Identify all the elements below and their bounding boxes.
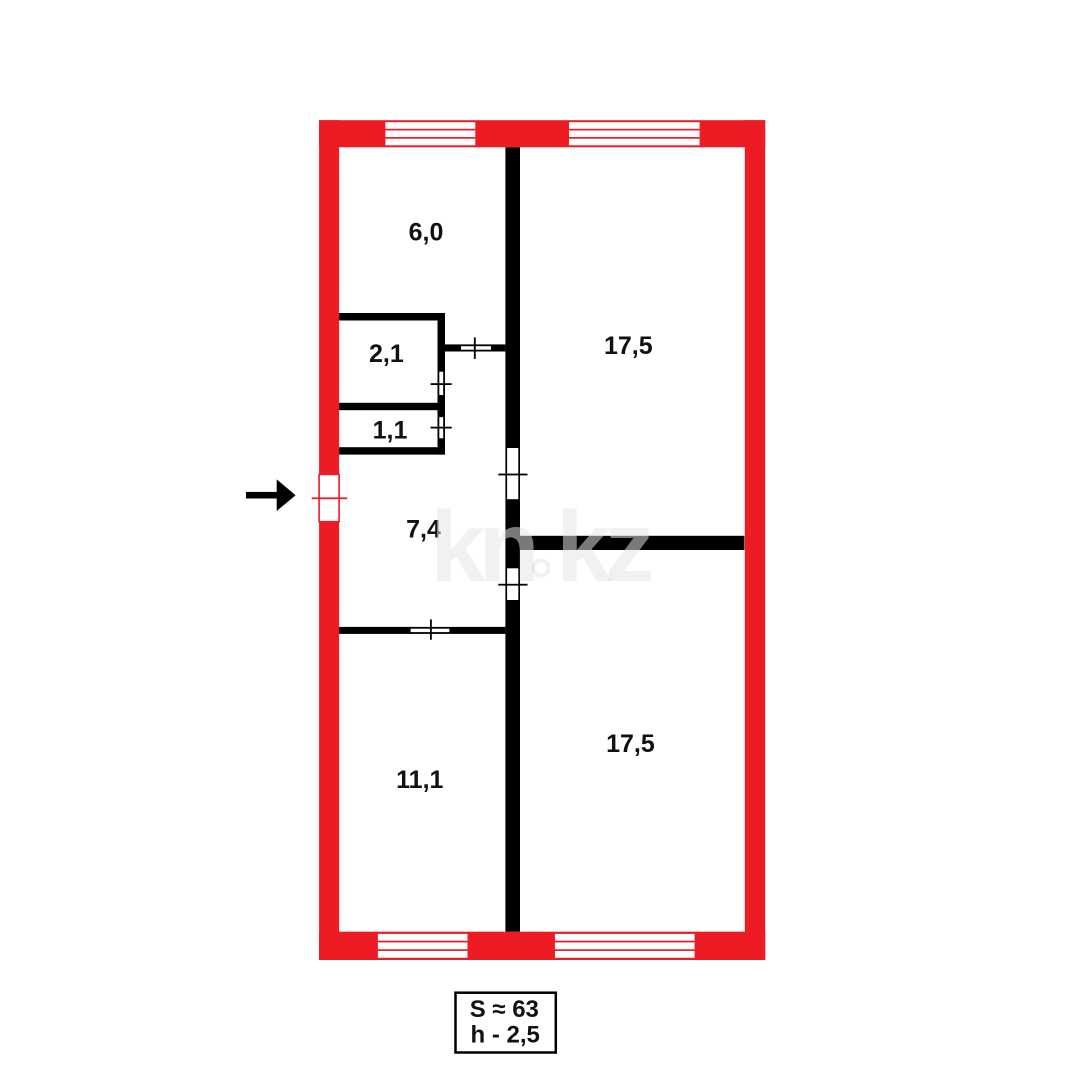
svg-text:S ≈ 63: S ≈ 63 [470, 996, 539, 1023]
svg-text:6,0: 6,0 [409, 218, 444, 246]
svg-text:1,1: 1,1 [373, 416, 408, 444]
svg-text:kz: kz [556, 491, 652, 603]
svg-text:2,1: 2,1 [369, 340, 404, 368]
svg-text:17,5: 17,5 [606, 730, 655, 758]
svg-text:kn: kn [430, 491, 534, 603]
svg-text:17,5: 17,5 [604, 332, 653, 360]
svg-text:h - 2,5: h - 2,5 [471, 1022, 540, 1049]
svg-text:11,1: 11,1 [396, 766, 443, 794]
